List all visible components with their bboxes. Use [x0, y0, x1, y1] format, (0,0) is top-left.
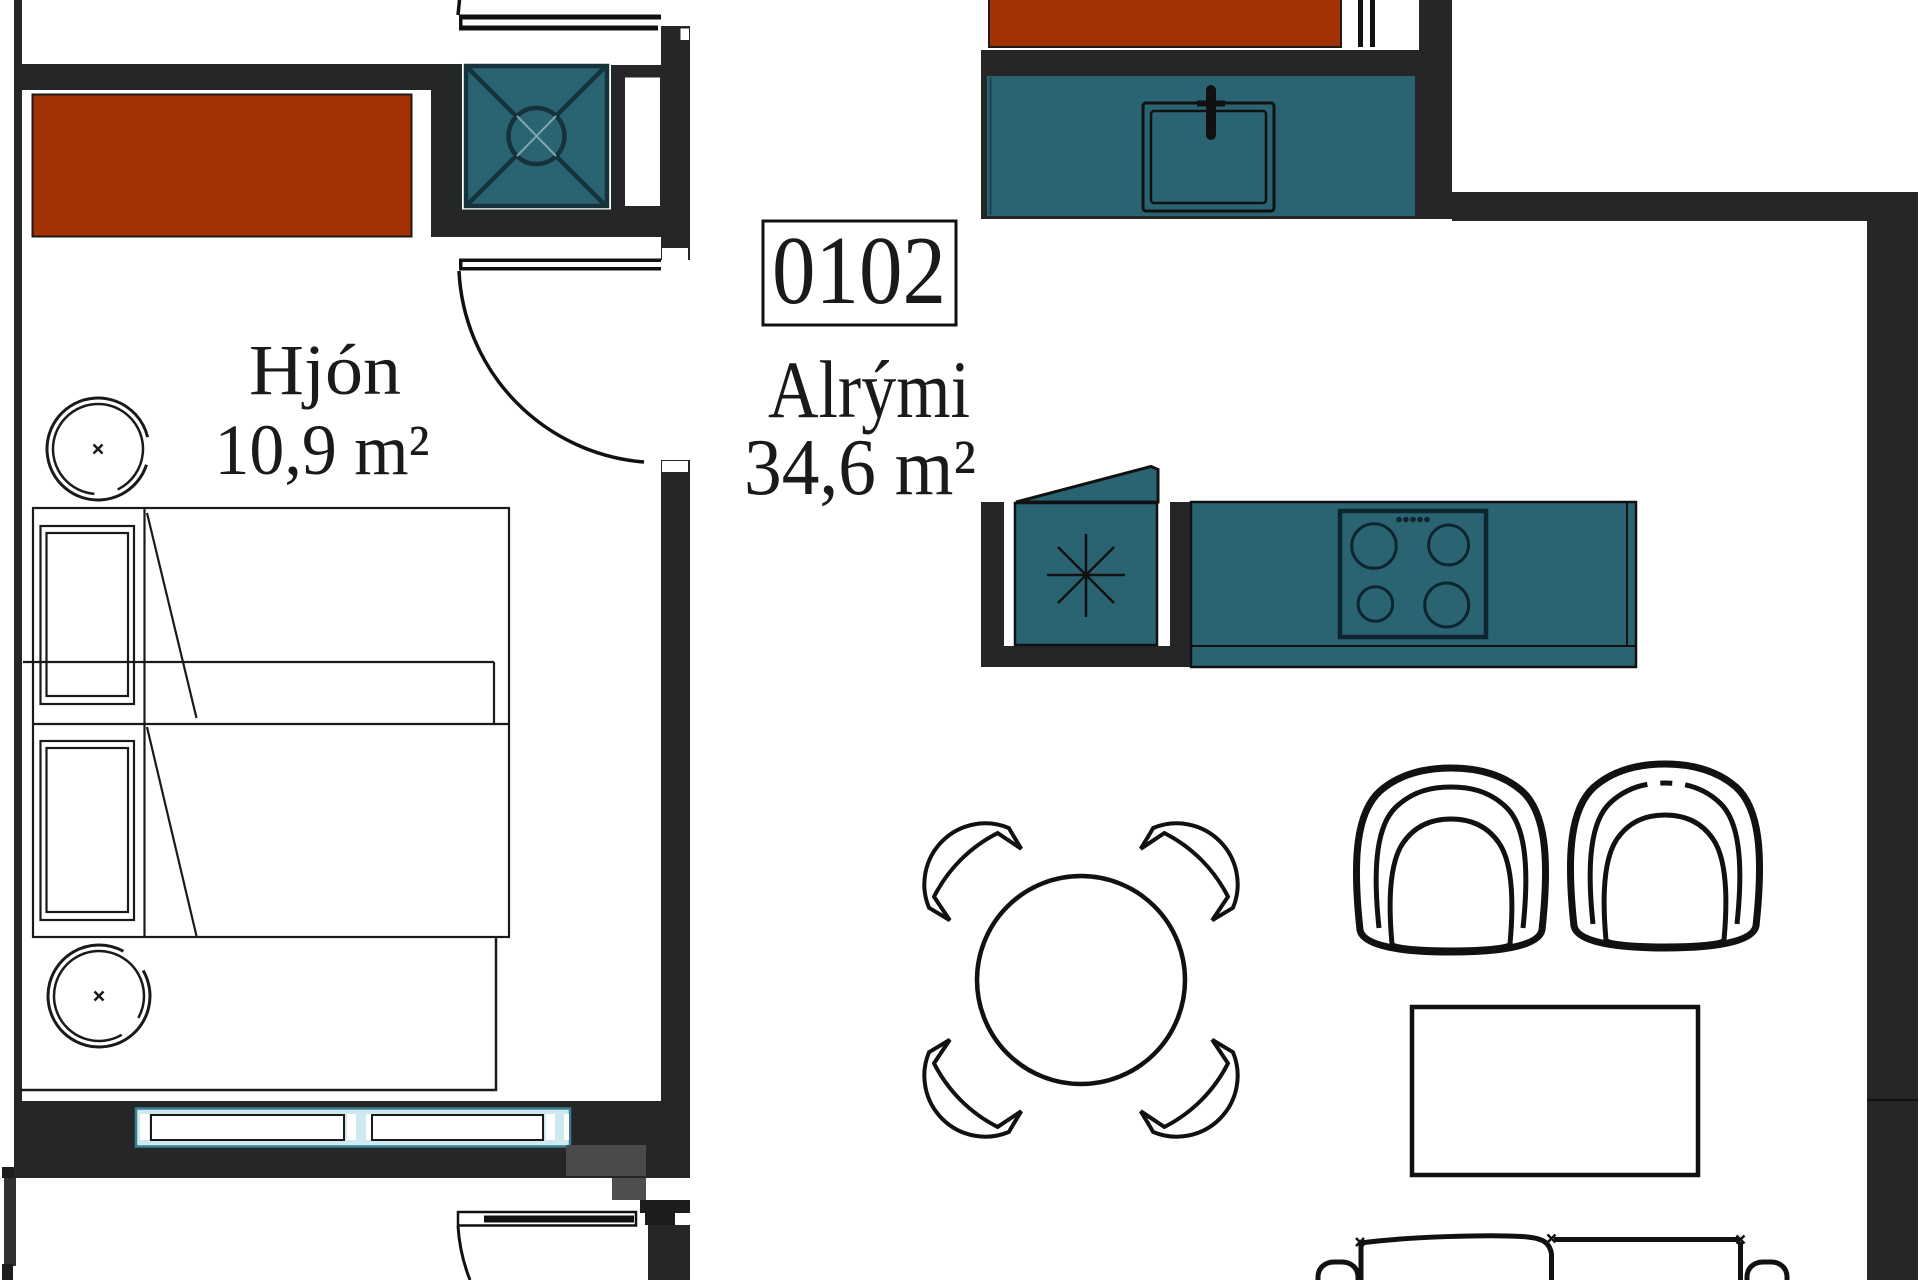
svg-text:Alrými: Alrými — [768, 344, 970, 435]
svg-text:0102: 0102 — [772, 217, 946, 325]
svg-text:34,6 m²: 34,6 m² — [744, 424, 976, 512]
svg-text:Hjón: Hjón — [249, 330, 401, 410]
svg-text:10,9 m²: 10,9 m² — [215, 410, 430, 490]
